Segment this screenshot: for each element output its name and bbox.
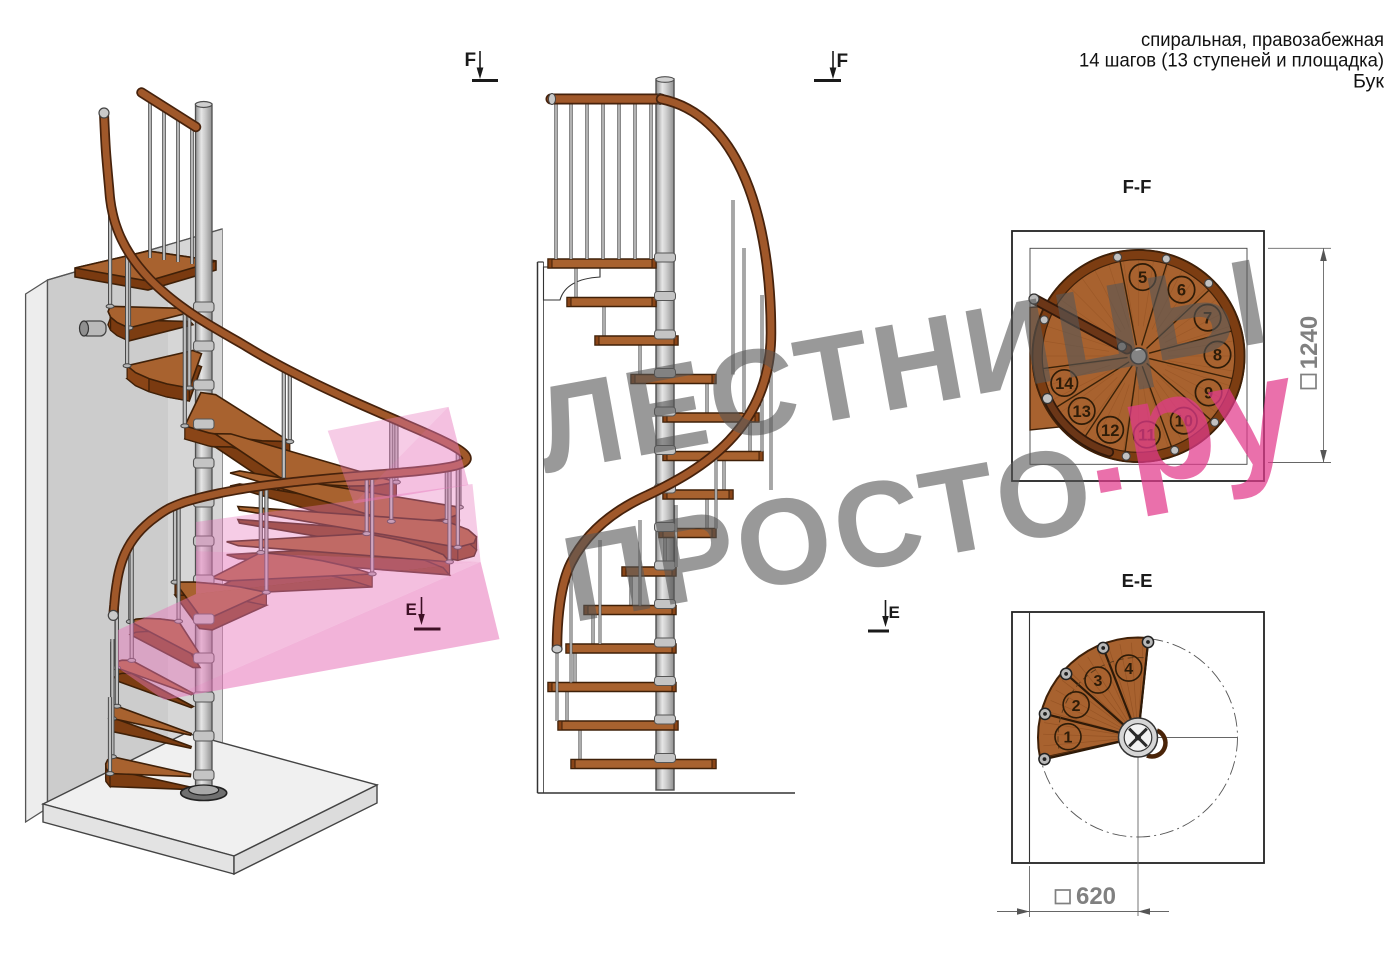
svg-text:E: E xyxy=(406,600,417,619)
svg-text:F-F: F-F xyxy=(1123,176,1152,197)
svg-text:F: F xyxy=(837,51,849,72)
svg-text:3: 3 xyxy=(1094,673,1103,690)
svg-text:спиральная, правозабежная: спиральная, правозабежная xyxy=(1141,29,1384,51)
svg-text:620: 620 xyxy=(1076,883,1116,910)
svg-text:2: 2 xyxy=(1072,698,1081,715)
svg-text:Бук: Бук xyxy=(1353,71,1384,93)
svg-text:14 шагов (13 ступеней и площад: 14 шагов (13 ступеней и площадка) xyxy=(1079,50,1384,72)
svg-text:1240: 1240 xyxy=(1296,316,1323,369)
svg-text:F: F xyxy=(465,50,477,71)
svg-text:E-E: E-E xyxy=(1122,570,1153,591)
svg-text:E: E xyxy=(889,603,900,622)
svg-text:4: 4 xyxy=(1124,661,1133,678)
svg-text:1: 1 xyxy=(1064,730,1073,747)
